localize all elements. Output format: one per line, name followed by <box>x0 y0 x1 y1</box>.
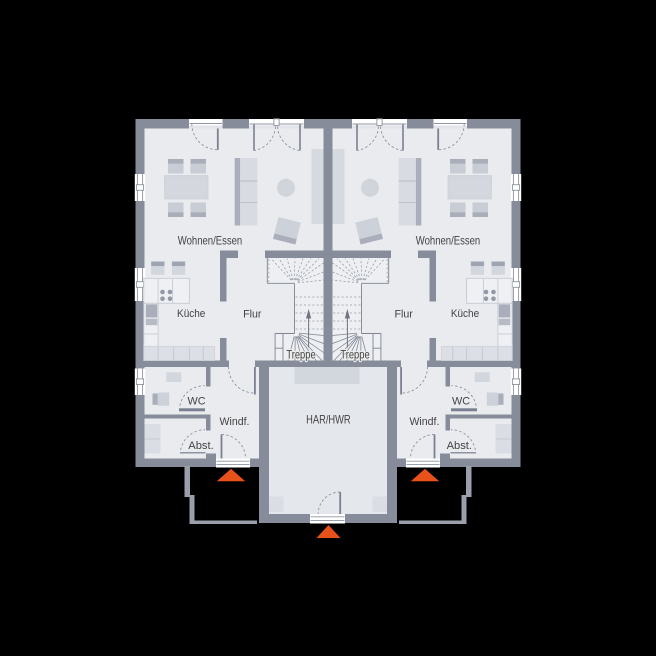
svg-text:Küche: Küche <box>177 308 205 321</box>
svg-text:Flur: Flur <box>243 308 262 320</box>
svg-text:HAR/HWR: HAR/HWR <box>306 415 351 427</box>
svg-text:Flur: Flur <box>395 308 414 320</box>
svg-text:Windf.: Windf. <box>409 416 439 428</box>
svg-text:Treppe: Treppe <box>340 350 369 362</box>
svg-text:Treppe: Treppe <box>286 350 315 362</box>
svg-text:Küche: Küche <box>451 308 479 321</box>
svg-text:Windf.: Windf. <box>220 416 250 428</box>
svg-text:WC: WC <box>452 395 470 407</box>
svg-text:Abst.: Abst. <box>447 440 472 452</box>
svg-text:Wohnen/Essen: Wohnen/Essen <box>416 235 481 248</box>
svg-text:Wohnen/Essen: Wohnen/Essen <box>178 235 243 248</box>
svg-text:WC: WC <box>187 395 205 407</box>
svg-text:Abst.: Abst. <box>188 440 213 452</box>
